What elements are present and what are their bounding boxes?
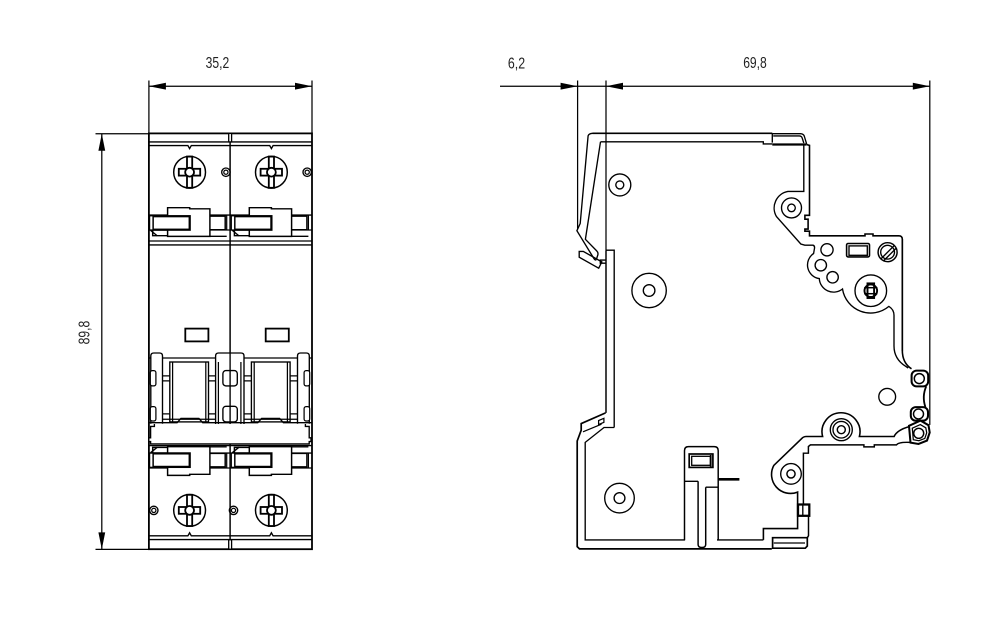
svg-text:89,8: 89,8 <box>77 321 94 345</box>
svg-text:69,8: 69,8 <box>743 55 767 72</box>
svg-text:6,2: 6,2 <box>508 55 525 72</box>
svg-text:35,2: 35,2 <box>206 55 230 72</box>
